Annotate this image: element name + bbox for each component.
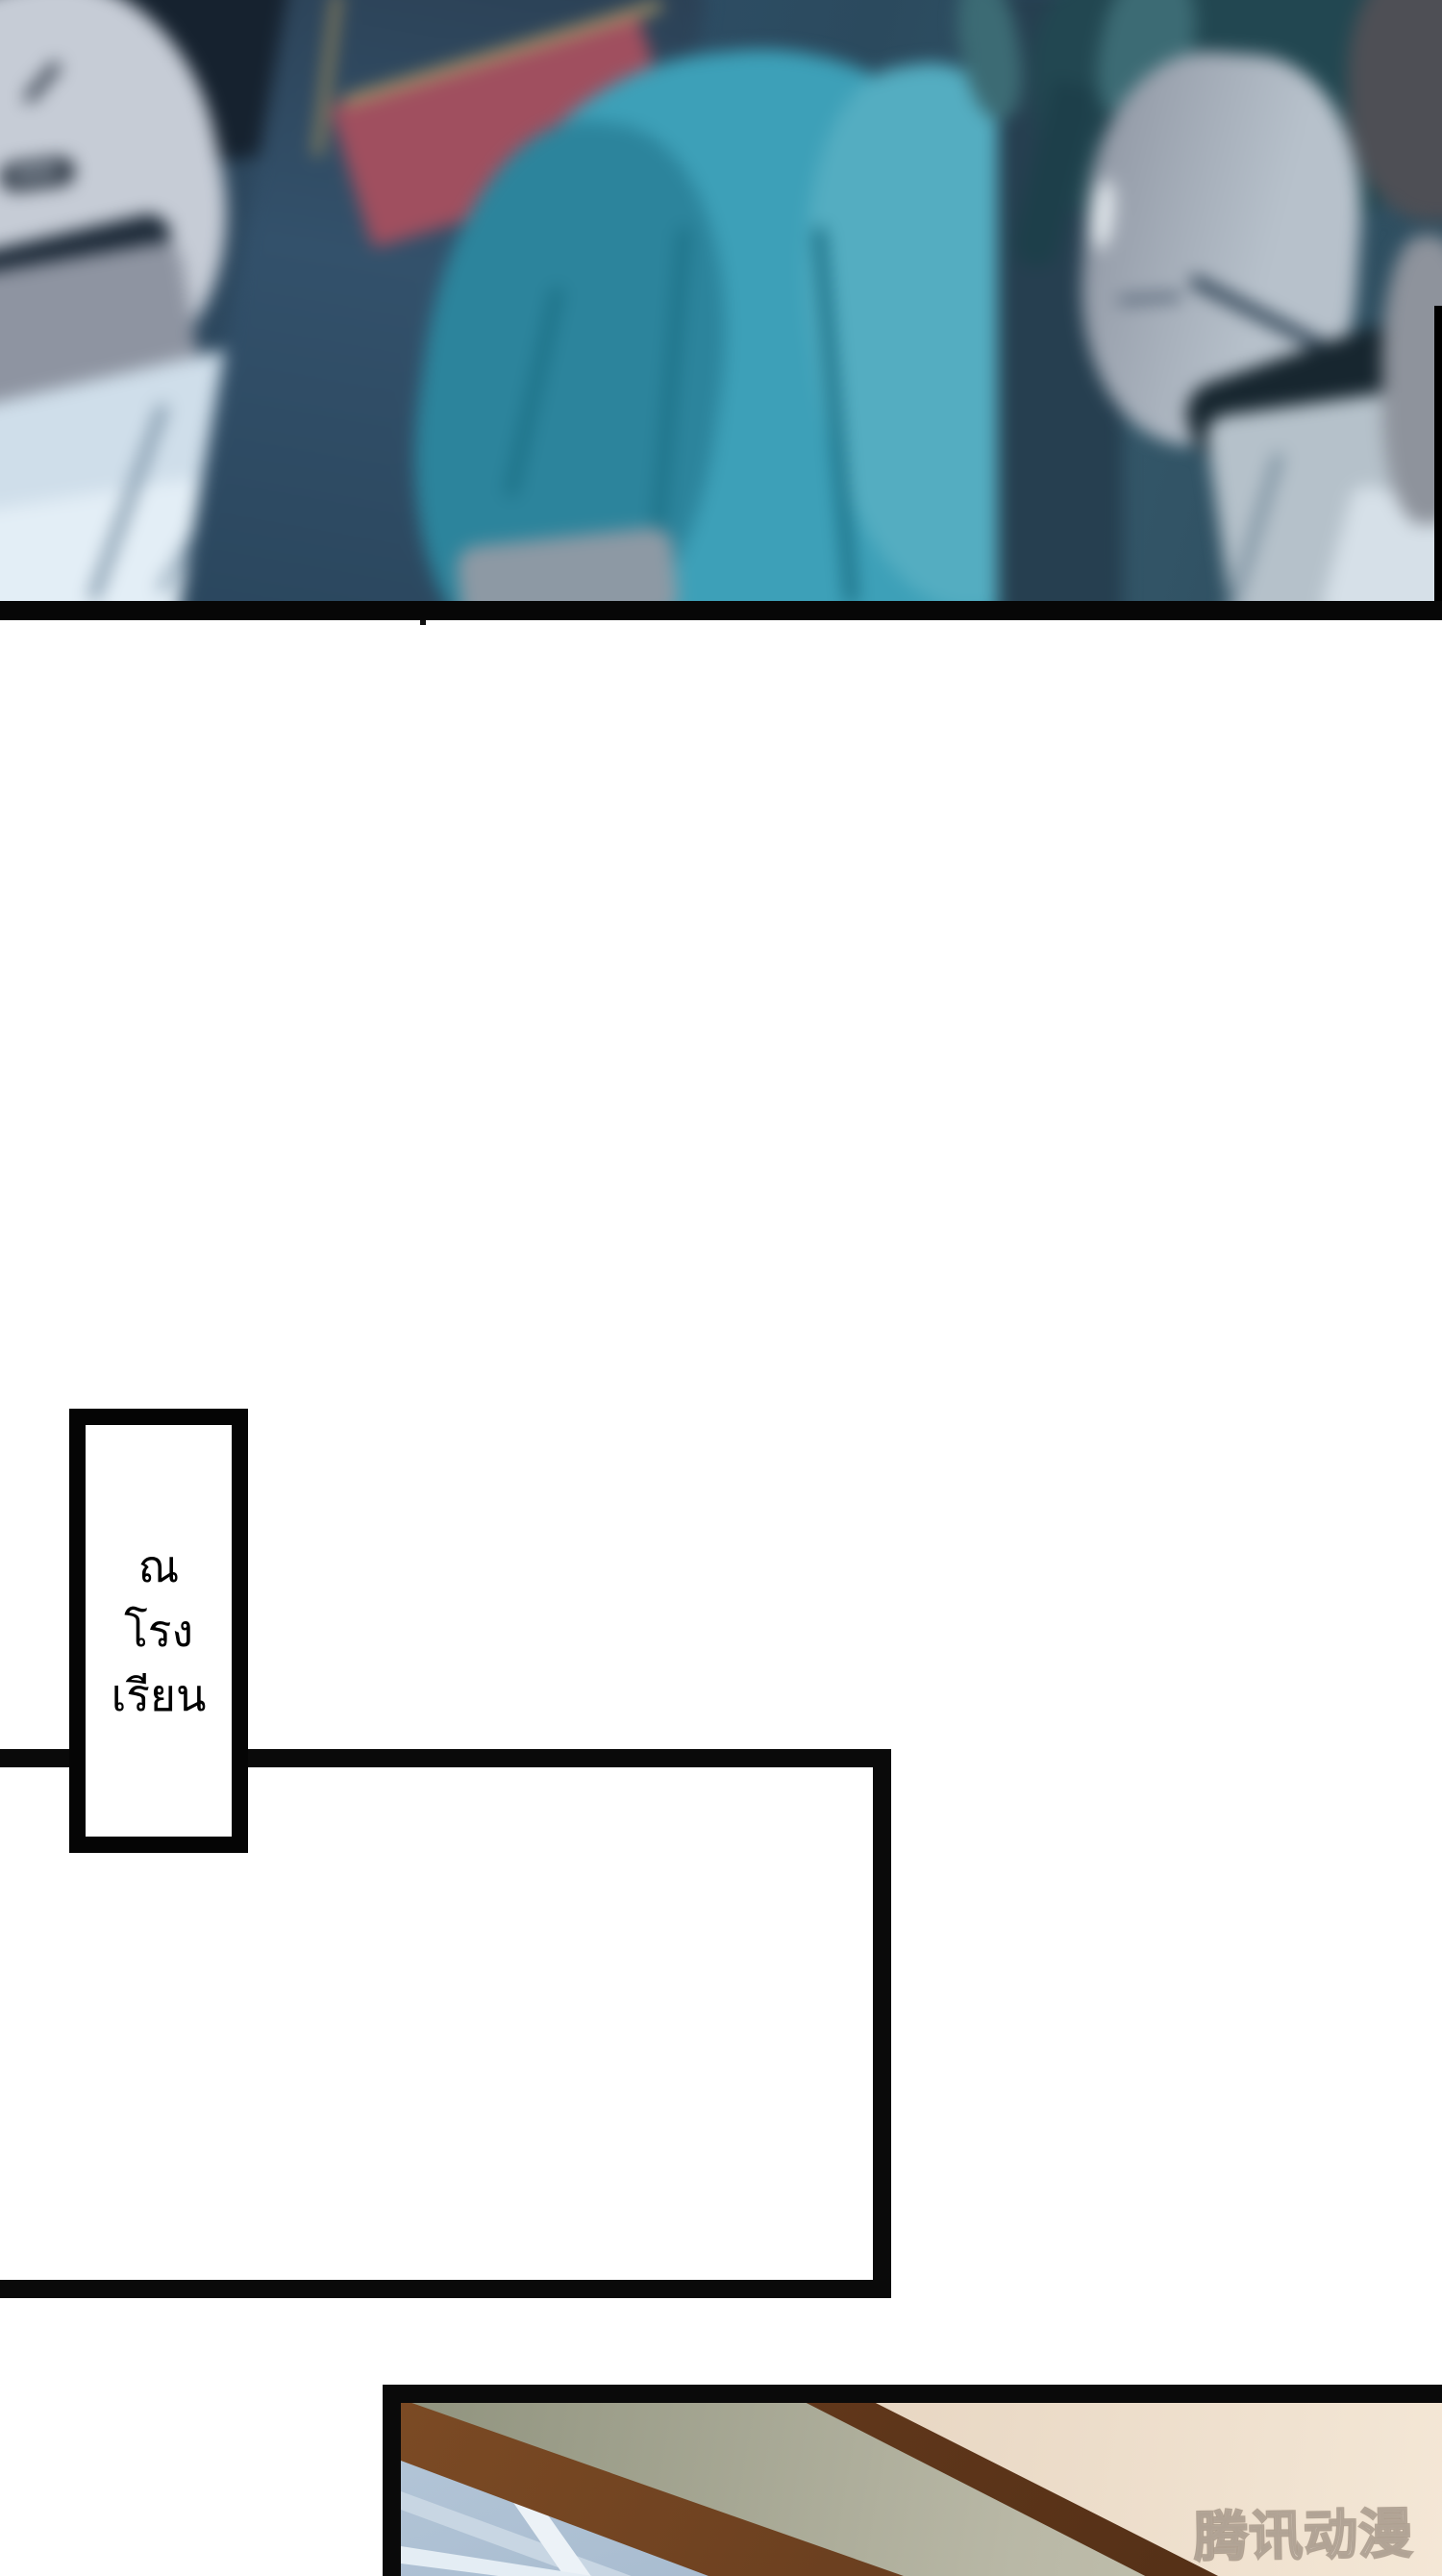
caption-line-1: ณ <box>138 1535 180 1599</box>
caption-line-3: เรียน <box>112 1663 207 1728</box>
top-panel-bottom-bar <box>0 601 1442 620</box>
right-edge-gray-blob <box>1382 236 1442 524</box>
room-panel: 腾讯动漫 <box>383 2385 1442 2576</box>
caption-box: ณ โรง เรียน <box>69 1409 248 1853</box>
comic-page: ณ โรง เรียน 腾讯动漫 <box>0 0 1442 2576</box>
top-panel-artwork <box>0 0 1442 601</box>
right-edge-strip <box>1434 306 1442 601</box>
stray-mark <box>420 620 426 625</box>
caption-line-2: โรง <box>124 1599 193 1663</box>
blurred-scene <box>0 0 1442 601</box>
tencent-comics-watermark: 腾讯动漫 <box>1193 2490 1413 2572</box>
